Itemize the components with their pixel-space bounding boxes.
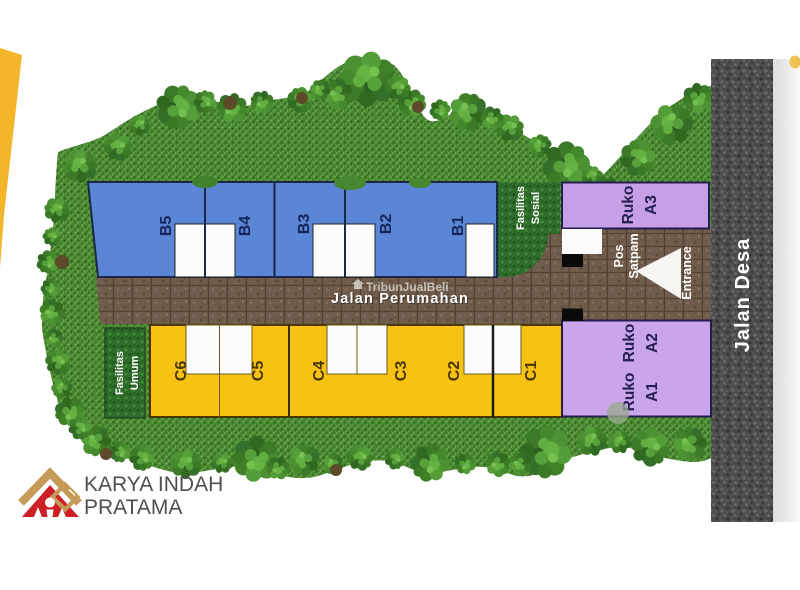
svg-text:PRATAMA: PRATAMA [84,496,182,519]
svg-text:C3: C3 [393,361,410,382]
svg-text:B2: B2 [378,214,395,235]
svg-text:B3: B3 [296,214,313,235]
svg-text:Jalan Desa: Jalan Desa [732,238,754,353]
svg-text:C4: C4 [311,361,328,382]
svg-text:Jalan Perumahan: Jalan Perumahan [331,291,469,307]
svg-text:B4: B4 [237,216,254,237]
svg-text:C2: C2 [446,361,463,382]
svg-text:C6: C6 [173,361,190,382]
svg-text:C5: C5 [250,361,267,382]
svg-text:B1: B1 [450,216,467,237]
svg-text:B5: B5 [158,216,175,237]
svg-text:Entrance: Entrance [680,246,694,300]
svg-text:C1: C1 [523,361,540,382]
svg-text:KARYA INDAH: KARYA INDAH [84,473,223,496]
